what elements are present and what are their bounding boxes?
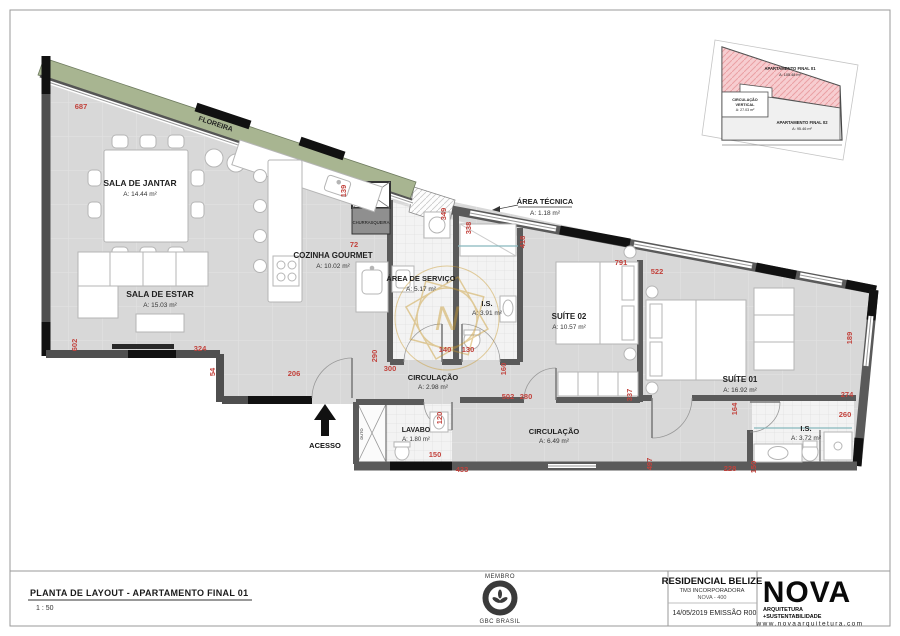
dim-label: 130 <box>462 345 475 354</box>
dim-label: 72 <box>350 240 358 249</box>
nova-logo-subtitle-2: +SUSTENTABILIDADE <box>763 614 822 620</box>
dim-label: 791 <box>615 258 628 267</box>
room-label-area-tecnica: ÁREA TÉCNICA <box>517 197 574 206</box>
inset-apt02-area: A: 95.46 m² <box>792 127 812 131</box>
dim-label: 418 <box>518 236 527 249</box>
room-area-is2: A: 3.72 m² <box>791 435 822 442</box>
dim-label: 189 <box>845 332 854 345</box>
dim-label: 502 <box>502 392 515 401</box>
dim-label: 497 <box>645 458 654 471</box>
room-label-circulacao2: CIRCULAÇÃO <box>529 427 580 436</box>
dim-label: 54 <box>208 367 217 376</box>
drawing-sheet: N SALA DE JANTAR A: 14.44 m² SALA DE EST… <box>0 0 900 636</box>
project-code: NOVA - 400 <box>698 595 727 601</box>
inset-apt02-label: APARTAMENTO FINAL 02 <box>776 120 828 125</box>
room-label-lavabo: LAVABO <box>402 427 431 434</box>
dim-label: 324 <box>194 344 207 353</box>
issue-date: 14/05/2019 <box>672 610 707 617</box>
inset-apt01-label: APARTAMENTO FINAL 01 <box>764 66 816 71</box>
pendant-lamp <box>205 149 223 167</box>
room-area-suite02: A: 10.57 m² <box>552 324 586 331</box>
acesso-label: ACESSO <box>309 441 341 450</box>
floor-plan-sheet: N SALA DE JANTAR A: 14.44 m² SALA DE EST… <box>0 0 900 636</box>
project-info-block: RESIDENCIAL BELIZE TM3 INCORPORADORA NOV… <box>662 576 763 617</box>
tv-panel <box>112 344 174 349</box>
inset-key-plan: APARTAMENTO FINAL 01 A: 105.48 m² CIRCUL… <box>702 40 858 160</box>
dim-label: 433 <box>456 465 469 474</box>
room-area-sala-de-estar: A: 15.03 m² <box>143 302 177 309</box>
room-area-area-tecnica: A: 1.18 m² <box>530 210 561 217</box>
dim-label: 120 <box>435 412 444 425</box>
room-label-cozinha: COZINHA GOURMET <box>293 251 372 260</box>
room-area-lavabo: A: 1.80 m² <box>402 437 430 443</box>
inset-circ-label-1: CIRCULAÇÃO <box>732 97 758 102</box>
dim-label: 338 <box>464 222 473 235</box>
dim-label: 150 <box>749 461 758 474</box>
nova-logo-text: NOVA <box>763 576 851 609</box>
acesso-marker: ACESSO <box>309 404 341 450</box>
dim-label: 274 <box>841 390 854 399</box>
dim-label: 280 <box>520 392 533 401</box>
room-area-cozinha: A: 10.02 m² <box>316 263 350 270</box>
room-area-is1: A: 3.91 m² <box>472 310 503 317</box>
room-label-is1: I.S. <box>481 299 492 308</box>
drawing-scale: 1 : 50 <box>36 605 54 612</box>
dim-label: 290 <box>370 350 379 363</box>
room-area-circulacao1: A: 2.98 m² <box>418 384 449 391</box>
room-label-is2: I.S. <box>800 424 811 433</box>
room-area-suite01: A: 16.92 m² <box>723 387 757 394</box>
dim-label: 602 <box>70 339 79 352</box>
inset-circ-label-2: VERTICAL <box>736 103 756 107</box>
duto-label: DUTO <box>359 428 364 439</box>
dim-label: 260 <box>839 410 852 419</box>
dim-label: 687 <box>75 102 88 111</box>
room-label-sala-de-jantar: SALA DE JANTAR <box>103 178 176 188</box>
kitchen-sink-counter <box>356 262 388 312</box>
room-label-circulacao1: CIRCULAÇÃO <box>408 373 459 382</box>
room-label-servico: ÁREA DE SERVIÇO <box>386 274 455 283</box>
inset-apt01-area: A: 105.48 m² <box>779 73 801 77</box>
drawing-title: PLANTA DE LAYOUT - APARTAMENTO FINAL 01 <box>30 588 248 598</box>
title-bar: PLANTA DE LAYOUT - APARTAMENTO FINAL 01 … <box>28 574 864 628</box>
dim-label: 206 <box>288 369 301 378</box>
dim-label: 337 <box>625 389 634 402</box>
dim-label: 300 <box>384 364 397 373</box>
dim-label: 228 <box>724 464 737 473</box>
room-label-sala-de-estar: SALA DE ESTAR <box>126 289 194 299</box>
dim-label: 522 <box>651 267 664 276</box>
room-area-servico: A: 5.17 m² <box>406 286 437 293</box>
dim-label: 160 <box>499 363 508 376</box>
dim-label: 139 <box>339 185 348 198</box>
churrasqueira-label: CHURRASQUEIRA <box>353 220 390 225</box>
room-label-suite02: SUÍTE 02 <box>552 312 587 321</box>
acesso-arrow-icon <box>314 404 336 436</box>
room-label-suite01: SUÍTE 01 <box>723 375 758 384</box>
revision-label: EMISSÃO R00 <box>710 608 757 617</box>
project-developer: TM3 INCORPORADORA <box>679 588 744 594</box>
member-label: MEMBRO <box>485 574 515 580</box>
inset-circ-area: A: 27.03 m² <box>736 108 755 112</box>
drawing-title-block: PLANTA DE LAYOUT - APARTAMENTO FINAL 01 … <box>28 588 252 612</box>
dim-label: 164 <box>730 402 739 415</box>
member-org: GBC BRASIL <box>479 619 520 625</box>
member-badge: MEMBRO GBC BRASIL <box>479 574 520 625</box>
watermark-letter: N <box>435 300 460 338</box>
gbc-logo-icon <box>486 584 515 613</box>
suite01-wardrobe <box>754 288 794 370</box>
dim-label: 150 <box>429 450 442 459</box>
project-name: RESIDENCIAL BELIZE <box>662 576 763 587</box>
nova-logo-subtitle-1: ARQUITETURA <box>763 607 803 613</box>
dim-label: 349 <box>439 208 448 221</box>
nova-logo: NOVA ARQUITETURA +SUSTENTABILIDADE www.n… <box>756 576 864 628</box>
dim-label: 140 <box>439 345 452 354</box>
website-label: www.novaarquitetura.com <box>756 621 864 628</box>
coffee-table <box>136 314 184 332</box>
room-area-sala-de-jantar: A: 14.44 m² <box>123 191 157 198</box>
room-area-circulacao2: A: 6.49 m² <box>539 438 570 445</box>
